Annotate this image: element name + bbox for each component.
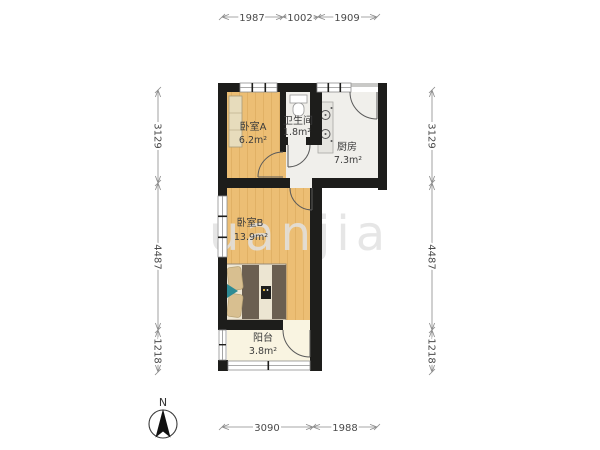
entrance-lintel [350,83,378,87]
dim-left-1: 3129 [152,123,163,148]
dim-top: 1987 1002 1909 [219,13,380,24]
dim-right-2: 4487 [426,244,437,269]
window-balcony-bottom [228,361,310,370]
dim-bottom-2: 1988 [332,423,357,434]
dim-right: 3129 4487 1218 [426,87,437,375]
dim-top-2: 1002 [287,13,312,24]
bed [224,264,286,320]
dim-bottom: 3090 1988 [219,423,380,434]
window-bedroom-a-top [240,83,277,92]
north-label: N [159,396,167,409]
room-area-bedroom-a: 6.2m² [239,135,267,146]
dim-left: 3129 4487 1218 [152,87,163,375]
balcony-corner-post [218,360,228,371]
room-area-kitchen: 7.3m² [334,155,362,166]
room-area-balcony: 3.8m² [249,346,277,357]
dim-left-3: 1218 [152,338,163,363]
floorplan-page: uanjia [0,0,600,450]
room-label-kitchen: 厨房 [337,140,357,153]
dim-top-1: 1987 [239,13,264,24]
dim-bottom-1: 3090 [254,423,279,434]
window-balcony-left [219,330,226,360]
window-kitchen-top [317,83,351,92]
dim-left-2: 4487 [152,244,163,269]
room-label-bedroom-b: 卧室B [237,216,264,229]
bed-tray [261,286,271,299]
window-bedroom-b-left [218,196,227,257]
wall-kitchen-right [378,83,387,190]
room-area-bedroom-b: 13.9m² [234,232,268,243]
room-label-bedroom-a: 卧室A [240,120,267,133]
room-area-bathroom: 1.8m² [283,127,311,138]
dim-top-3: 1909 [334,13,359,24]
dim-right-1: 3129 [426,123,437,148]
room-label-bathroom: 卫生间 [283,114,313,127]
floorplan-svg: uanjia [0,0,600,450]
room-label-balcony: 阳台 [253,331,273,344]
compass: N [149,396,177,438]
dim-right-3: 1218 [426,338,437,363]
pillow [227,293,244,318]
hallway-floor [286,145,322,178]
